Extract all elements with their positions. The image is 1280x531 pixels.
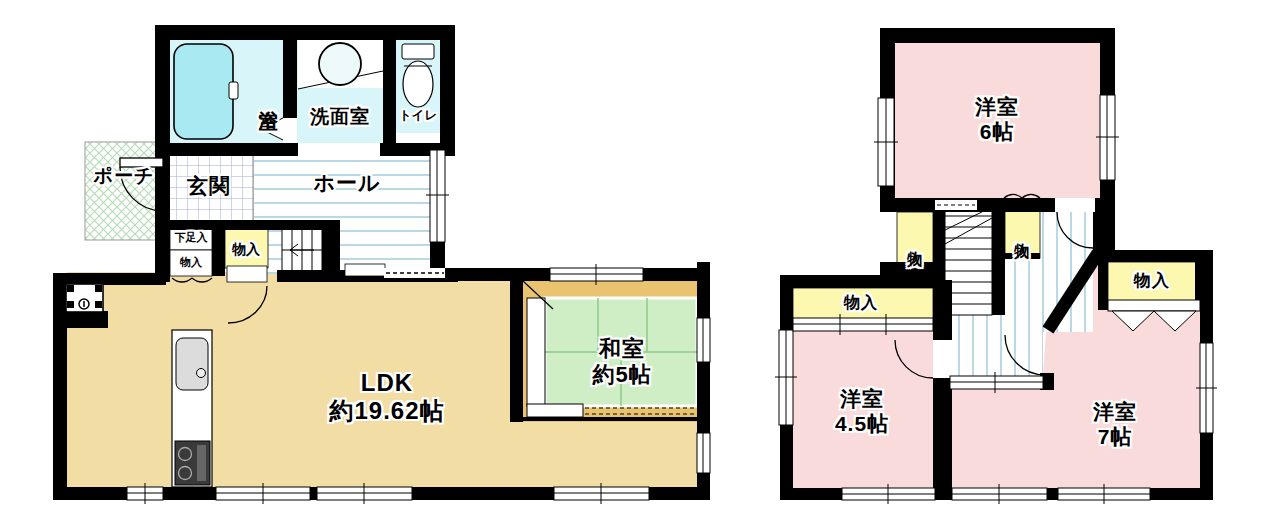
closet2-left-box bbox=[897, 212, 933, 266]
room-label-porch: ポーチ bbox=[94, 165, 155, 187]
room-label-washroom: 洗面室 bbox=[310, 106, 370, 128]
room-label-closet2-45: 物入 bbox=[844, 294, 878, 313]
sink-bowl bbox=[319, 43, 361, 85]
room-label-toilet: トイレ bbox=[399, 108, 437, 123]
utility-unit bbox=[66, 284, 103, 312]
japanese-room-size: 約5帖 bbox=[592, 362, 651, 388]
toilet-tank bbox=[402, 44, 434, 59]
porch-floor bbox=[85, 142, 165, 240]
ldk-doorway bbox=[227, 266, 267, 282]
bedroom7-size: 7帖 bbox=[1093, 425, 1137, 450]
faucet bbox=[197, 369, 206, 378]
room-label-hall: ホール bbox=[314, 171, 381, 196]
room-label-closet: 物入 bbox=[232, 241, 260, 258]
toilet-bowl bbox=[403, 61, 433, 107]
floorplan-canvas: 浴室 洗面室 トイレ ポーチ 玄関 ホール 下足入 物入 物入 LDK 約19.… bbox=[0, 0, 1280, 531]
room-label-bedroom6: 洋室 6帖 bbox=[975, 95, 1019, 145]
bedroom6-size: 6帖 bbox=[975, 120, 1019, 145]
room-label-japanese-room: 和室 約5帖 bbox=[592, 336, 651, 388]
room-label-bedroom45: 洋室 4.5帖 bbox=[835, 387, 889, 437]
bedroom45-size: 4.5帖 bbox=[835, 412, 889, 437]
bedroom7-name: 洋室 bbox=[1093, 400, 1137, 425]
room-label-shoe-storage: 下足入 bbox=[175, 231, 208, 244]
room-label-closet2-7: 物入 bbox=[1134, 271, 1170, 291]
sliding-panel bbox=[527, 298, 545, 406]
room-label-ldk: LDK 約19.62帖 bbox=[329, 369, 444, 426]
stairs-1f bbox=[282, 228, 322, 272]
room-label-entrance: 玄関 bbox=[187, 174, 231, 199]
ldk-name: LDK bbox=[329, 369, 444, 397]
stairs-2f bbox=[945, 205, 992, 315]
room-label-bedroom7: 洋室 7帖 bbox=[1093, 400, 1137, 450]
bedroom45-name: 洋室 bbox=[835, 387, 889, 412]
closet2-right-box bbox=[1005, 207, 1040, 258]
room-label-closet-small: 物入 bbox=[180, 256, 202, 269]
ldk-size: 約19.62帖 bbox=[329, 397, 444, 425]
japanese-room-name: 和室 bbox=[592, 336, 651, 362]
kitchen-sink bbox=[176, 338, 208, 390]
hall-floor bbox=[254, 150, 430, 274]
bedroom6-name: 洋室 bbox=[975, 95, 1019, 120]
bathtub bbox=[174, 44, 233, 139]
